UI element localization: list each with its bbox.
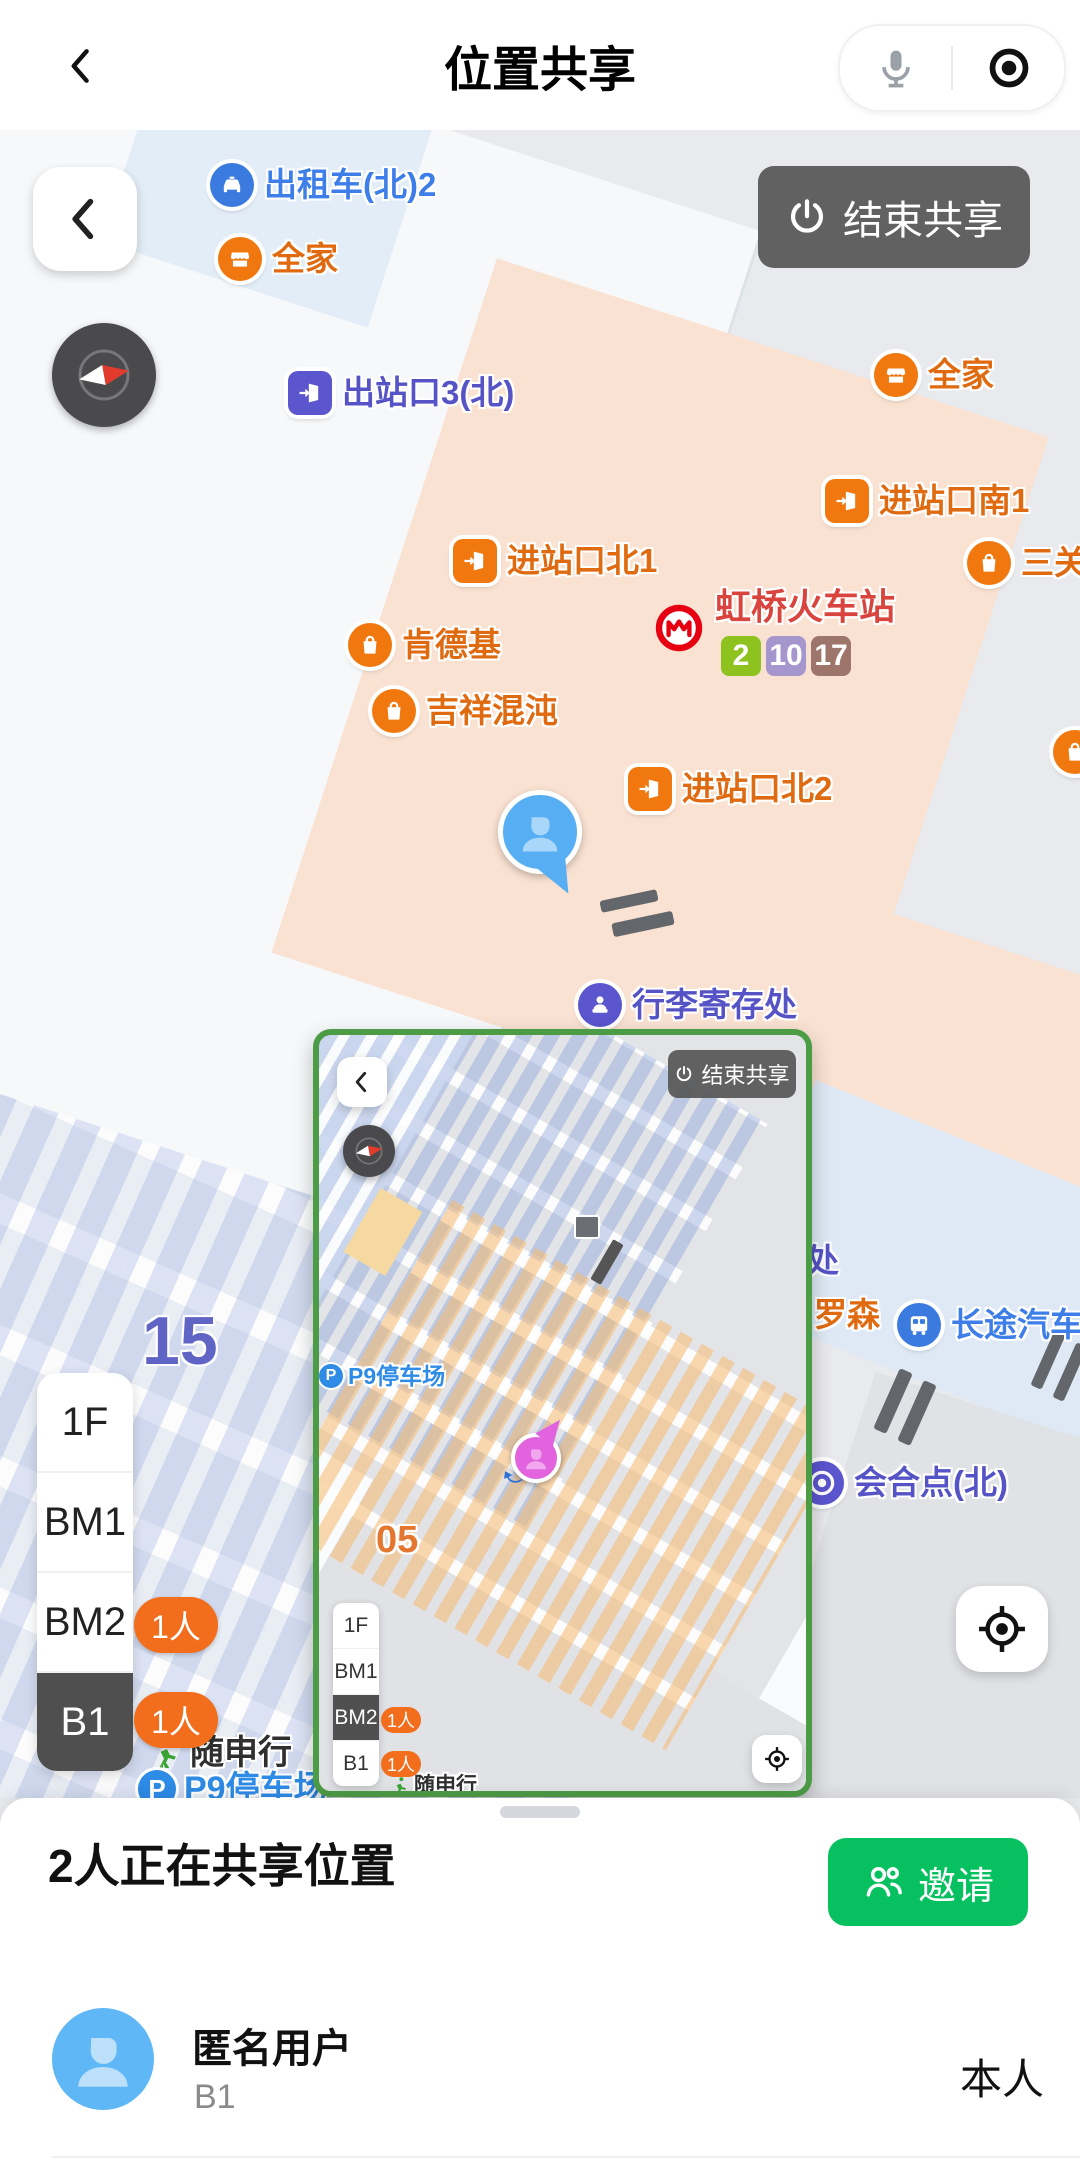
concierge-person-icon — [578, 983, 622, 1027]
entrance-door-icon — [825, 479, 869, 523]
invite-people-icon — [862, 1860, 906, 1904]
metro-line-badges: 2 10 17 — [721, 636, 851, 676]
poi-label: 进站口北1 — [507, 538, 657, 584]
record-circle-icon — [986, 45, 1032, 91]
compass-needle-icon — [68, 339, 140, 411]
poi-familymart-right[interactable]: 全家 — [874, 352, 994, 398]
member-floor: B1 — [194, 2078, 236, 2117]
share-bottom-sheet: 2人正在共享位置 邀请 匿名用户 B1 本人 — [0, 1798, 1080, 2164]
end-share-label: 结束共享 — [843, 188, 1003, 246]
poi-label: 三关 — [1021, 540, 1080, 586]
p9-parking-label: P9停车场 — [184, 1766, 328, 1798]
floor-item-b1-selected[interactable]: B1 — [37, 1671, 133, 1771]
suishenxing-logo-icon — [389, 1775, 411, 1797]
parking-p-icon: P — [319, 1364, 343, 1388]
back-chevron-icon — [59, 193, 111, 245]
poi-label: 全家 — [928, 352, 994, 398]
inset-compass[interactable] — [343, 1125, 395, 1177]
poi-taxi-north-2[interactable]: 出租车(北)2 — [210, 162, 436, 208]
compass-control[interactable] — [52, 323, 156, 427]
shopping-bag-icon — [967, 541, 1011, 585]
metro-line-17-badge: 17 — [811, 636, 851, 676]
microphone-icon — [874, 46, 918, 90]
exit-door-icon — [288, 371, 332, 415]
shopping-bag-icon — [1053, 730, 1080, 774]
target-locate-icon — [975, 1602, 1029, 1656]
power-icon — [674, 1064, 694, 1084]
capsule-close-button[interactable] — [953, 26, 1064, 110]
poi-entrance-north-2[interactable]: 进站口北2 — [628, 766, 832, 812]
store-icon — [218, 237, 262, 281]
peer-location-marker[interactable] — [511, 1433, 561, 1483]
inset-floor-bm1[interactable]: BM1 — [333, 1648, 379, 1694]
row-divider — [52, 2156, 1080, 2158]
poi-label: 全家 — [272, 236, 338, 282]
taxi-icon — [210, 163, 254, 207]
poi-luggage-storage[interactable]: 行李寄存处 — [578, 982, 797, 1028]
poi-label: 长途汽车站 — [951, 1302, 1080, 1348]
poi-san-partial[interactable]: 三关 — [967, 540, 1080, 586]
inset-floor-1f[interactable]: 1F — [333, 1603, 379, 1648]
invite-label: 邀请 — [918, 1855, 994, 1910]
metro-line-10-badge: 10 — [766, 636, 806, 676]
inset-floor-selector: 1F BM1 BM2 B1 — [333, 1603, 379, 1786]
inset-locate-button[interactable] — [752, 1735, 802, 1783]
poi-label: 肯德基 — [402, 622, 501, 668]
store-icon — [874, 353, 918, 397]
poi-jixiang-wonton[interactable]: 吉祥混沌 — [372, 688, 558, 734]
inset-zone-05-label: 05 — [376, 1517, 418, 1563]
floor-item-bm2[interactable]: BM2 — [37, 1571, 133, 1671]
invite-button[interactable]: 邀请 — [828, 1838, 1028, 1926]
bus-icon — [897, 1303, 941, 1347]
locate-me-button[interactable] — [956, 1586, 1048, 1672]
poi-lawson-label: 罗森 — [814, 1292, 880, 1338]
parking-p-icon: P — [138, 1770, 176, 1798]
inset-b1-count-badge: 1人 — [381, 1751, 421, 1777]
poi-label: 出站口3(北) — [342, 370, 514, 416]
shanghai-metro-logo-icon — [655, 604, 703, 652]
peer-map-inset[interactable]: 结束共享 P P9停车场 05 1F BM1 BM2 B1 1人 1人 随申行 — [313, 1029, 812, 1797]
inset-back-button[interactable] — [337, 1057, 387, 1107]
poi-label: 进站口北2 — [682, 766, 832, 812]
poi-familymart-top[interactable]: 全家 — [218, 236, 338, 282]
poi-label: 行李寄存处 — [632, 982, 797, 1028]
inset-bm2-count-badge: 1人 — [381, 1707, 421, 1733]
power-icon — [785, 195, 829, 239]
poi-kfc[interactable]: 肯德基 — [348, 622, 501, 668]
floor-selector: 1F BM1 BM2 B1 — [37, 1373, 133, 1771]
entrance-door-icon — [453, 539, 497, 583]
member-self-tag: 本人 — [960, 2046, 1044, 2107]
floor-item-bm1[interactable]: BM1 — [37, 1471, 133, 1571]
compass-needle-icon — [350, 1132, 388, 1170]
poi-entrance-south-1[interactable]: 进站口南1 — [825, 478, 1029, 524]
inset-floor-bm2-selected[interactable]: BM2 — [333, 1694, 379, 1740]
self-location-marker[interactable] — [498, 790, 582, 874]
sharing-count-title: 2人正在共享位置 — [48, 1830, 396, 1896]
inset-floor-b1[interactable]: B1 — [333, 1740, 379, 1786]
floor-bm2-count-badge: 1人 — [134, 1597, 218, 1653]
drag-handle[interactable] — [500, 1806, 580, 1818]
poi-coach-bus[interactable]: 长途汽车站 — [897, 1302, 1080, 1348]
floor-b1-count-badge: 1人 — [134, 1692, 218, 1748]
member-avatar — [52, 2008, 154, 2110]
poi-label: 会合点(北) — [854, 1460, 1008, 1506]
member-name: 匿名用户 — [192, 2016, 352, 2074]
poi-label: 出租车(北)2 — [264, 162, 436, 208]
poi-entrance-north-1[interactable]: 进站口北1 — [453, 538, 657, 584]
shopping-bag-icon — [348, 623, 392, 667]
inset-suishenxing-label: 随申行 — [414, 1763, 477, 1797]
poi-label: 进站口南1 — [879, 478, 1029, 524]
elevator-icon — [574, 1215, 600, 1239]
target-locate-icon — [763, 1745, 791, 1773]
floor-item-1f[interactable]: 1F — [37, 1373, 133, 1471]
direction-arc-icon — [501, 1459, 527, 1485]
inset-p9-parking-label: P9停车场 — [348, 1353, 445, 1399]
parking-zone-15-label: 15 — [142, 1318, 218, 1364]
entrance-door-icon — [628, 767, 672, 811]
poi-partial-right-edge[interactable] — [1053, 730, 1080, 774]
inset-end-share-label: 结束共享 — [701, 1058, 789, 1090]
shopping-bag-icon — [372, 689, 416, 733]
back-chevron-icon — [349, 1069, 375, 1095]
metro-line-2-badge: 2 — [721, 636, 761, 676]
inset-p9-parking-label-group: P P9停车场 — [319, 1353, 445, 1399]
poi-exit-3-north[interactable]: 出站口3(北) — [288, 370, 514, 416]
poi-label: 吉祥混沌 — [426, 688, 558, 734]
p9-parking-label-group[interactable]: P P9停车场 — [138, 1766, 328, 1798]
end-share-button[interactable]: 结束共享 — [758, 166, 1030, 268]
miniprogram-capsule — [838, 24, 1066, 112]
station-name-label: 虹桥火车站 — [715, 584, 895, 630]
poi-meeting-point-north[interactable]: 会合点(北) — [800, 1460, 1008, 1506]
inset-end-share-button[interactable]: 结束共享 — [668, 1050, 796, 1098]
voice-button[interactable] — [840, 26, 951, 110]
map-back-button[interactable] — [33, 167, 137, 271]
